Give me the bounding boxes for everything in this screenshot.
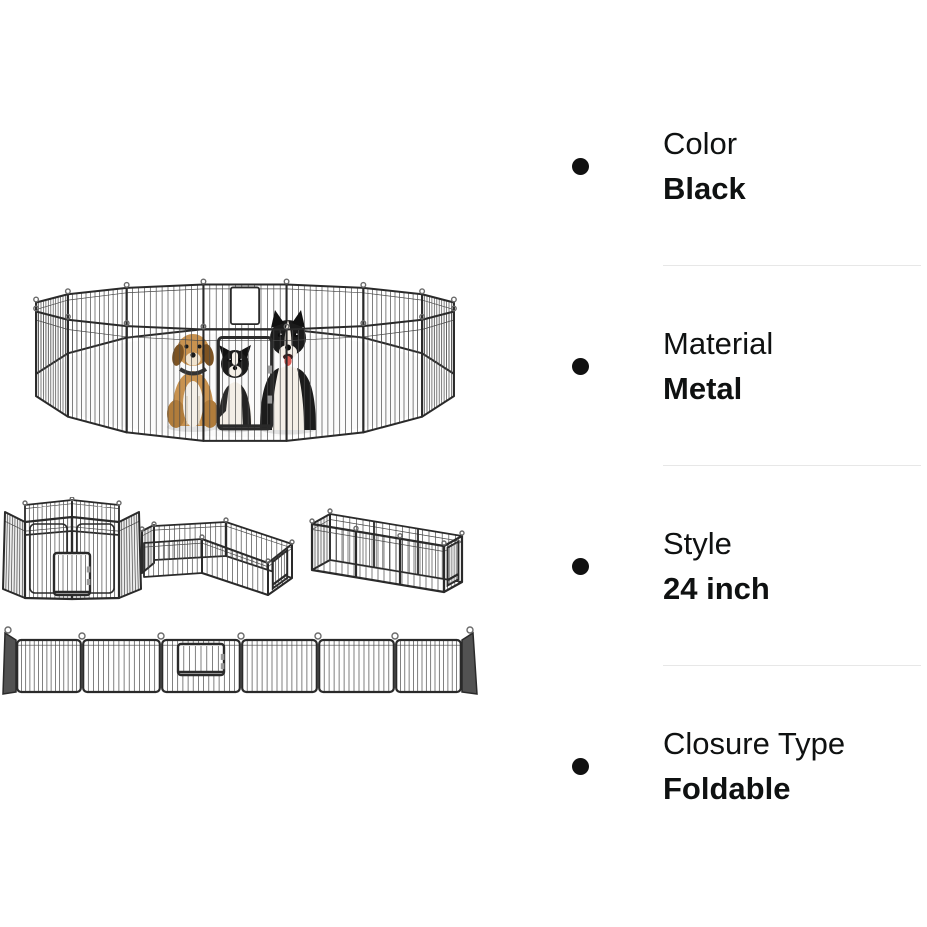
attribute-value: Foldable bbox=[663, 766, 923, 811]
divider bbox=[663, 265, 921, 266]
bullet-icon bbox=[572, 158, 589, 175]
attribute-row-color: Color Black bbox=[663, 121, 923, 211]
attribute-label: Style bbox=[663, 521, 923, 566]
attribute-value: 24 inch bbox=[663, 566, 923, 611]
attribute-row-closure-type: Closure Type Foldable bbox=[663, 721, 923, 811]
divider bbox=[663, 465, 921, 466]
product-detail-image: Color Black Material Metal Style 24 inch… bbox=[0, 0, 927, 927]
lshape-config-image bbox=[140, 515, 310, 603]
hexagon-config-image bbox=[2, 497, 142, 607]
bullet-icon bbox=[572, 358, 589, 375]
attribute-row-style: Style 24 inch bbox=[663, 521, 923, 611]
divider bbox=[663, 665, 921, 666]
bullet-icon bbox=[572, 758, 589, 775]
flat-panels-image bbox=[2, 620, 480, 698]
main-playpen-image bbox=[20, 268, 470, 456]
rectangle-config-image bbox=[302, 502, 480, 604]
attribute-label: Closure Type bbox=[663, 721, 923, 766]
attribute-row-material: Material Metal bbox=[663, 321, 923, 411]
attribute-value: Metal bbox=[663, 366, 923, 411]
attribute-value: Black bbox=[663, 166, 923, 211]
attribute-label: Color bbox=[663, 121, 923, 166]
attribute-label: Material bbox=[663, 321, 923, 366]
bullet-icon bbox=[572, 558, 589, 575]
